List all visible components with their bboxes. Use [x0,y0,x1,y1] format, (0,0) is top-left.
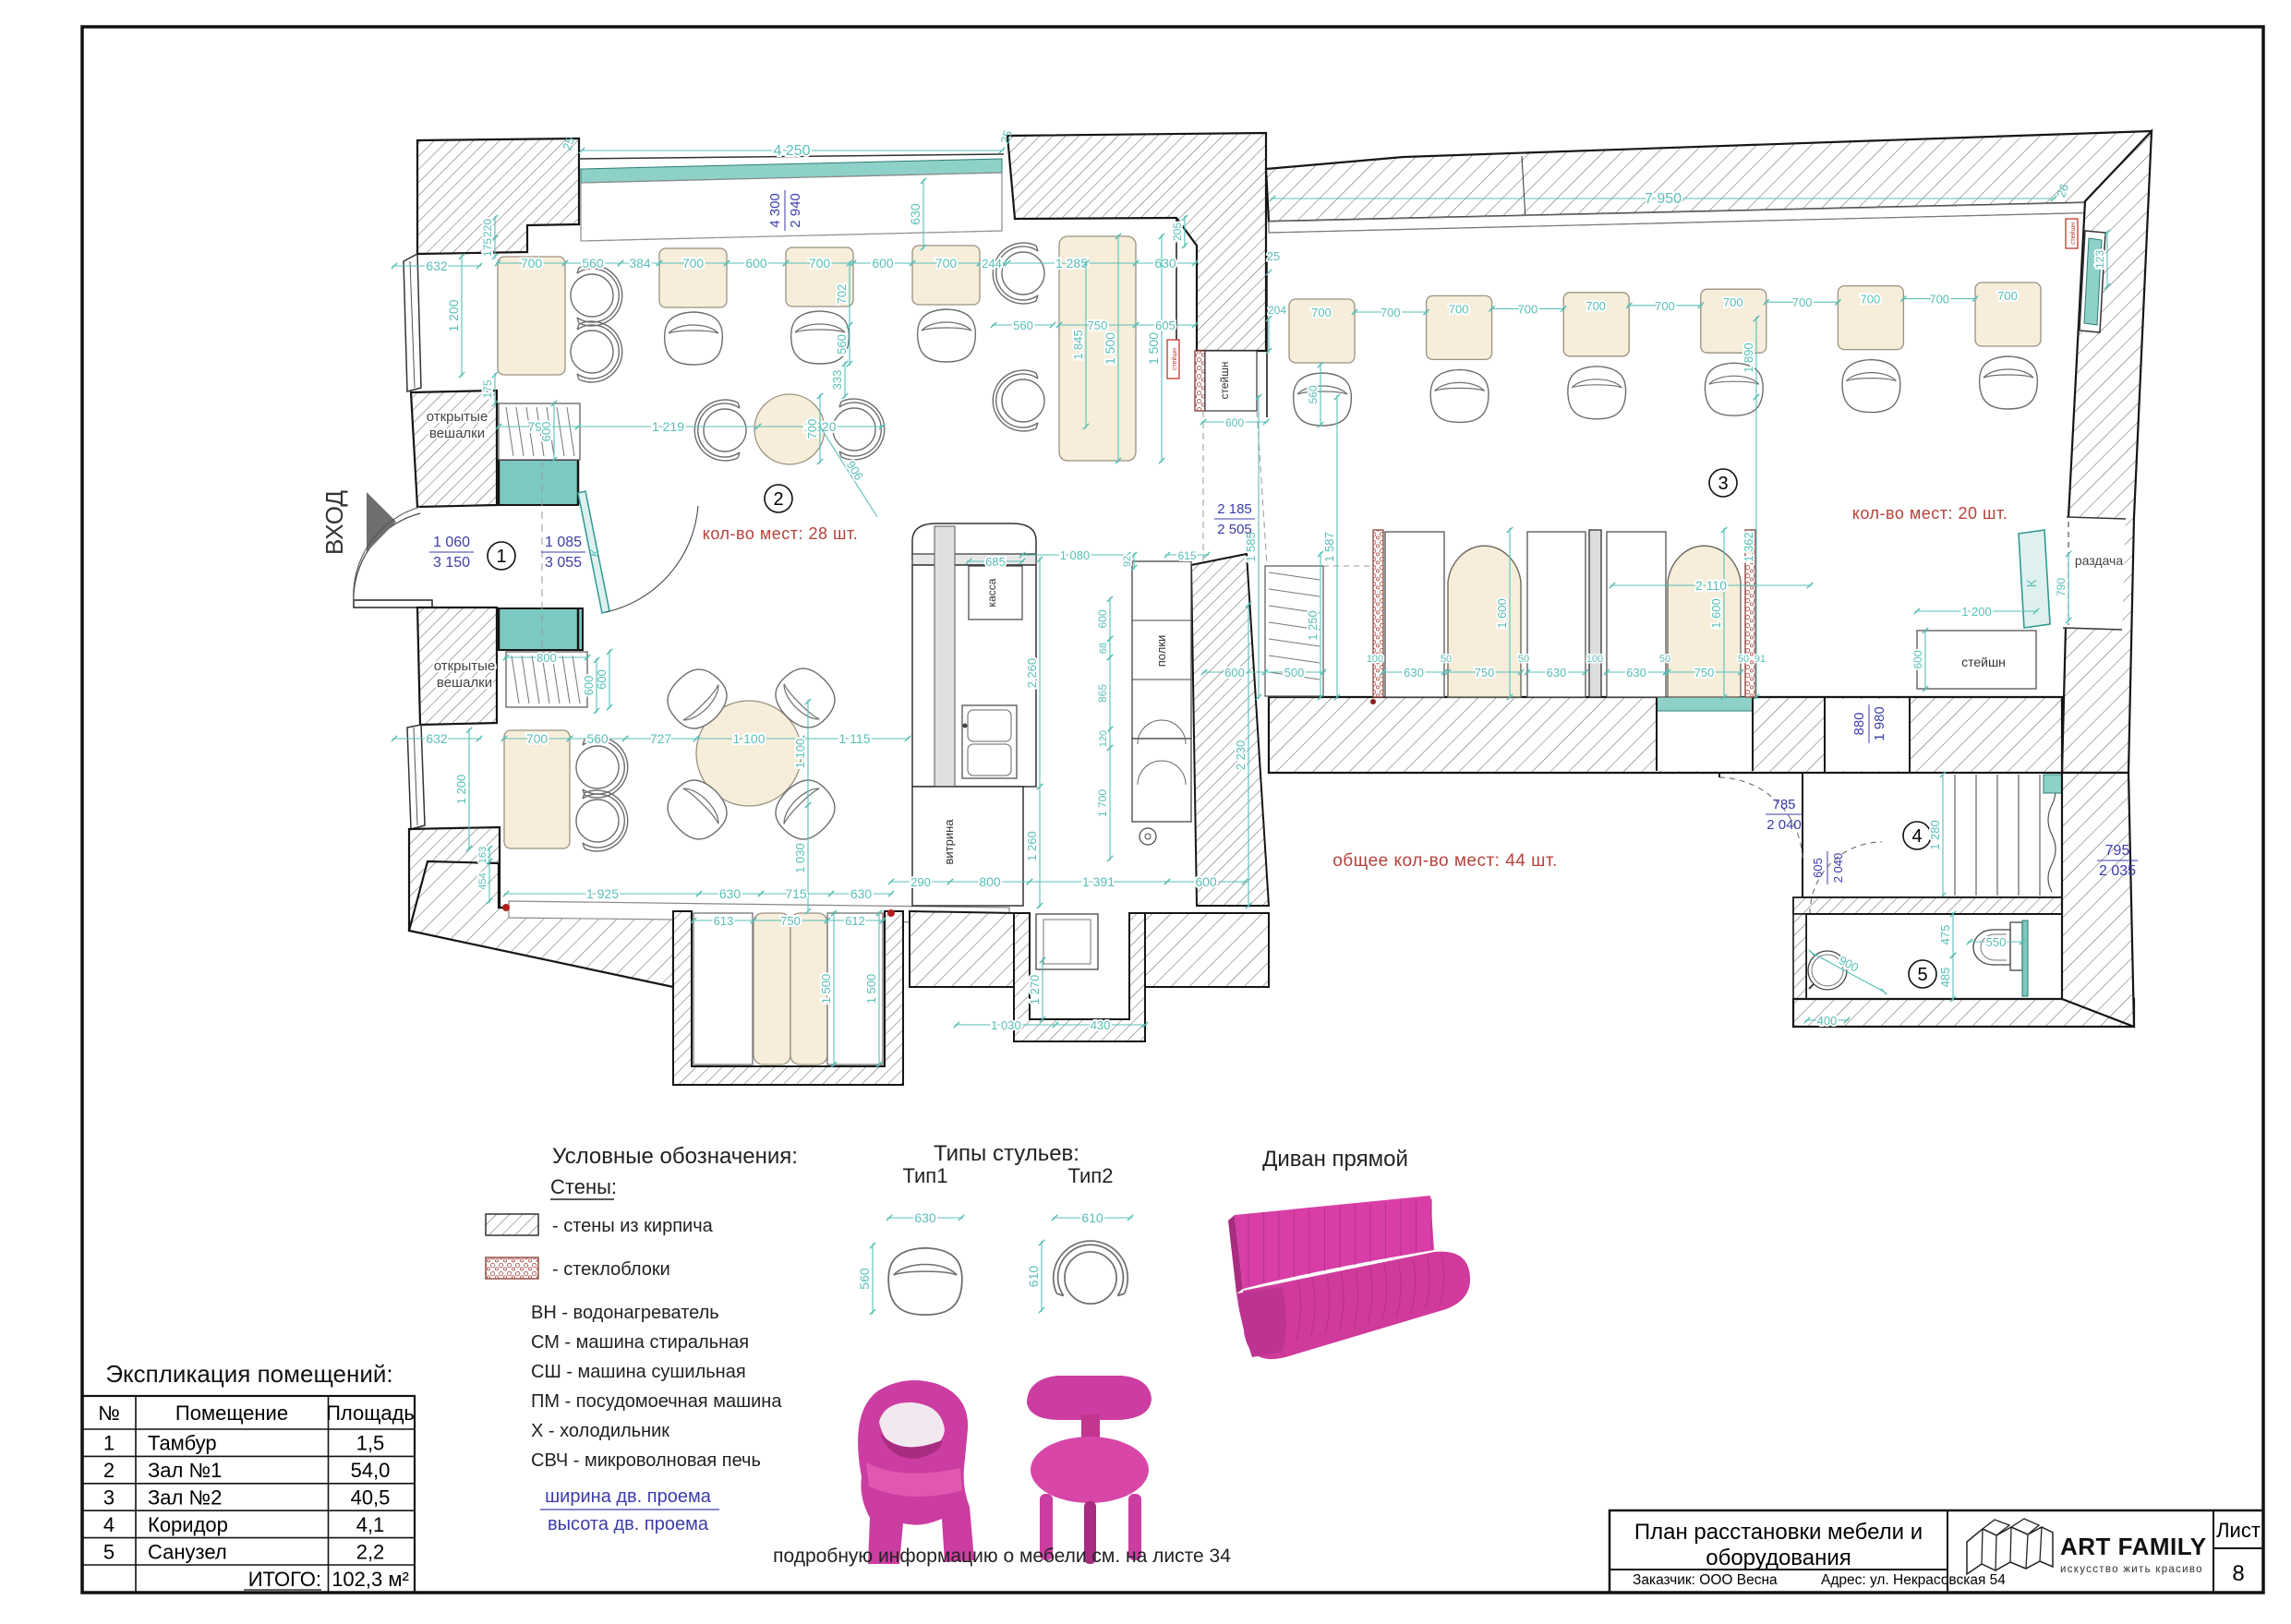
svg-text:204: 204 [1268,304,1286,317]
svg-text:560: 560 [1307,385,1320,403]
svg-text:500: 500 [1284,666,1305,680]
svg-text:Коридор: Коридор [148,1513,228,1536]
svg-text:750: 750 [1694,666,1715,680]
svg-text:Помещение: Помещение [175,1401,288,1425]
svg-text:632: 632 [426,259,448,273]
svg-text:оборудования: оборудования [1706,1546,1851,1570]
svg-text:700: 700 [1586,299,1606,313]
svg-text:1 700: 1 700 [1096,789,1109,817]
svg-text:700: 700 [1792,295,1813,309]
svg-text:2 035: 2 035 [2099,863,2136,879]
svg-text:5: 5 [103,1540,115,1563]
svg-text:1 362: 1 362 [1742,532,1755,562]
svg-text:600: 600 [582,676,596,696]
svg-text:1 845: 1 845 [1071,330,1085,360]
svg-text:630: 630 [850,886,873,901]
svg-text:102,3 м²: 102,3 м² [332,1568,409,1591]
svg-text:Типы стульев:: Типы стульев: [934,1141,1079,1166]
svg-text:50: 50 [1518,654,1529,665]
svg-text:615: 615 [1177,549,1196,562]
svg-text:790: 790 [2055,578,2068,596]
svg-text:54,0: 54,0 [351,1459,391,1482]
svg-text:3: 3 [1718,474,1728,494]
svg-text:1 980: 1 980 [1872,706,1887,741]
svg-text:стейшн: стейшн [1961,655,2006,669]
svg-text:СШ - машина сушильная: СШ - машина сушильная [531,1362,746,1382]
svg-text:стейшн: стейшн [1171,348,1178,370]
svg-text:700: 700 [682,256,705,271]
svg-text:600: 600 [1096,609,1109,628]
svg-text:1 030: 1 030 [991,1018,1021,1032]
svg-text:вешалки: вешалки [437,675,492,691]
svg-text:1 030: 1 030 [793,843,807,873]
svg-text:ИТОГО:: ИТОГО: [248,1568,321,1591]
svg-text:630: 630 [1547,666,1567,680]
svg-text:вешалки: вешалки [429,426,485,441]
svg-text:865: 865 [1096,684,1109,703]
svg-text:ПМ - посудомоечная машина: ПМ - посудомоечная машина [531,1391,782,1412]
svg-text:700: 700 [1655,299,1675,313]
svg-text:600: 600 [872,256,894,271]
svg-text:750: 750 [1475,666,1495,680]
svg-text:4: 4 [103,1513,115,1536]
svg-text:раздача: раздача [2075,553,2123,568]
svg-text:333: 333 [830,370,844,391]
svg-text:795: 795 [2105,843,2130,859]
svg-text:2,2: 2,2 [356,1540,385,1563]
svg-text:244: 244 [982,257,1002,271]
svg-text:3 150: 3 150 [433,555,470,571]
svg-text:1 100: 1 100 [793,739,807,769]
svg-text:2 040: 2 040 [1831,853,1845,884]
svg-text:Условные обозначения:: Условные обозначения: [552,1144,798,1169]
svg-text:ширина дв. проема: ширина дв. проема [545,1486,712,1507]
svg-text:727: 727 [650,731,672,746]
svg-text:Санузел: Санузел [148,1540,227,1563]
svg-text:612: 612 [845,914,865,928]
svg-text:454: 454 [477,872,488,889]
svg-text:1 200: 1 200 [446,299,461,331]
svg-text:400: 400 [1817,1014,1838,1028]
svg-text:- стеклоблоки: - стеклоблоки [552,1259,670,1280]
svg-text:785: 785 [1772,797,1795,812]
svg-text:700: 700 [1997,289,2018,303]
svg-text:50: 50 [1659,654,1670,665]
svg-text:2 185: 2 185 [1217,501,1252,517]
svg-text:Площадь: Площадь [326,1401,415,1425]
svg-text:1 600: 1 600 [1709,598,1723,629]
svg-text:4 250: 4 250 [773,143,810,159]
svg-text:560: 560 [835,334,849,355]
svg-text:630: 630 [719,886,742,901]
svg-text:600: 600 [1224,666,1245,680]
svg-text:290: 290 [910,875,931,889]
svg-text:700: 700 [1449,302,1469,316]
svg-text:91: 91 [1754,654,1766,665]
svg-text:1: 1 [103,1432,115,1455]
svg-text:1 200: 1 200 [1961,605,1992,619]
svg-text:700: 700 [1861,293,1881,307]
svg-text:630: 630 [908,203,922,225]
svg-text:25: 25 [1267,249,1280,263]
svg-text:СМ - машина стиральная: СМ - машина стиральная [531,1332,749,1353]
svg-text:Лист: Лист [2216,1519,2261,1542]
svg-text:560: 560 [1013,319,1033,332]
svg-text:План расстановки мебели и: План расстановки мебели и [1634,1520,1923,1545]
svg-text:1 219: 1 219 [652,419,684,434]
svg-text:2 110: 2 110 [1695,578,1727,593]
svg-text:800: 800 [537,651,557,665]
svg-text:высота дв. проема: высота дв. проема [548,1514,709,1534]
svg-text:2: 2 [773,489,783,510]
svg-text:630: 630 [1404,666,1424,680]
svg-text:Стены:: Стены: [550,1175,617,1198]
svg-text:1 500: 1 500 [1103,332,1117,365]
svg-text:485: 485 [1938,968,1952,988]
svg-text:1 391: 1 391 [1082,874,1115,889]
svg-text:2 940: 2 940 [788,193,803,228]
svg-text:Зал №2: Зал №2 [148,1486,222,1510]
svg-text:700: 700 [521,256,543,271]
svg-text:50: 50 [1738,654,1749,665]
svg-text:1 260: 1 260 [1025,831,1039,861]
svg-text:стейшн: стейшн [2069,223,2077,245]
svg-text:1: 1 [496,547,506,567]
svg-text:1 115: 1 115 [839,731,871,746]
svg-text:430: 430 [1091,1018,1111,1032]
svg-text:560: 560 [857,1268,872,1290]
svg-text:560: 560 [586,731,609,746]
svg-text:700: 700 [809,256,831,271]
svg-text:610: 610 [1081,1210,1103,1225]
svg-text:Тип1: Тип1 [903,1164,948,1187]
svg-text:1,5: 1,5 [356,1432,385,1455]
svg-text:100: 100 [1586,654,1603,665]
svg-text:Диван прямой: Диван прямой [1262,1147,1408,1172]
svg-text:искусство жить красиво: искусство жить красиво [2060,1564,2203,1575]
svg-text:общее кол-во мест: 44 шт.: общее кол-во мест: 44 шт. [1332,851,1558,871]
svg-text:открытые: открытые [434,658,496,674]
svg-text:3 055: 3 055 [545,555,582,571]
svg-text:Зал №1: Зал №1 [148,1459,222,1482]
svg-text:700: 700 [1311,306,1332,319]
svg-text:1 500: 1 500 [864,974,878,1004]
svg-text:1 890: 1 890 [1742,343,1755,373]
svg-text:92: 92 [1122,556,1133,567]
svg-text:715: 715 [785,886,807,901]
svg-text:613: 613 [714,914,734,928]
svg-text:702: 702 [835,284,849,305]
svg-text:Адрес: ул. Некрасовская 54: Адрес: ул. Некрасовская 54 [1821,1572,2006,1588]
svg-text:163: 163 [477,847,488,863]
svg-text:1 600: 1 600 [1495,598,1509,629]
svg-text:175: 175 [481,238,494,257]
svg-text:кол-во мест: 28 шт.: кол-во мест: 28 шт. [703,524,858,543]
svg-text:50: 50 [1441,654,1452,665]
svg-text:600: 600 [745,256,767,271]
svg-text:стейшн: стейшн [1218,362,1231,400]
svg-text:8: 8 [2232,1561,2244,1586]
svg-text:касса: касса [985,578,998,607]
svg-text:2 260: 2 260 [1025,658,1039,689]
svg-text:витрина: витрина [942,819,956,865]
svg-text:1 587: 1 587 [1322,532,1336,562]
svg-text:4: 4 [1911,826,1922,847]
svg-text:700: 700 [805,419,819,439]
svg-text:К: К [2024,579,2040,587]
svg-text:550: 550 [1986,935,2007,949]
svg-text:№: № [98,1401,120,1425]
svg-text:610: 610 [1026,1266,1041,1288]
svg-text:СВЧ - микроволновая печь: СВЧ - микроволновая печь [531,1450,761,1471]
svg-text:630: 630 [1626,666,1646,680]
svg-text:5: 5 [1917,965,1927,985]
svg-text:600: 600 [1225,416,1244,429]
svg-text:1 100: 1 100 [732,731,765,746]
svg-text:120: 120 [1098,730,1109,747]
svg-text:1 060: 1 060 [433,535,470,550]
svg-text:4 300: 4 300 [767,193,783,228]
svg-text:2 040: 2 040 [1766,817,1802,833]
svg-text:Тип2: Тип2 [1068,1164,1114,1187]
svg-text:1 285: 1 285 [1055,256,1088,271]
svg-text:630: 630 [1154,256,1176,271]
svg-text:750: 750 [780,914,801,928]
svg-text:1 200: 1 200 [454,775,468,805]
svg-text:605: 605 [1155,319,1176,332]
svg-text:40,5: 40,5 [351,1486,391,1510]
svg-text:68: 68 [1098,643,1109,654]
svg-text:1 925: 1 925 [586,886,619,901]
svg-text:2: 2 [103,1459,115,1482]
svg-text:1 500: 1 500 [1146,332,1161,365]
svg-text:полки: полки [1154,635,1168,668]
svg-text:700: 700 [1518,302,1538,316]
svg-text:1 280: 1 280 [1928,820,1942,850]
svg-text:3: 3 [103,1486,115,1510]
svg-text:подробную информацию о мебели: подробную информацию о мебели см. на лис… [773,1546,1231,1567]
svg-text:4,1: 4,1 [356,1513,385,1536]
svg-text:700: 700 [526,731,549,746]
svg-text:475: 475 [1938,925,1952,945]
svg-text:1 080: 1 080 [1060,548,1091,562]
svg-text:ART FAMILY: ART FAMILY [2060,1533,2207,1560]
svg-text:Заказчик: ООО Весна: Заказчик: ООО Весна [1633,1572,1778,1588]
svg-text:685: 685 [985,555,1006,569]
svg-text:384: 384 [629,256,651,271]
svg-text:7 950: 7 950 [1645,191,1682,207]
svg-text:1 500: 1 500 [819,974,833,1004]
svg-text:кол-во мест: 20 шт.: кол-во мест: 20 шт. [1852,504,2008,523]
svg-text:открытые: открытые [427,409,488,425]
svg-text:Тамбур: Тамбур [148,1432,217,1455]
svg-text:175: 175 [481,379,494,398]
svg-text:632: 632 [426,731,448,746]
svg-text:560: 560 [582,256,604,271]
svg-text:700: 700 [1381,306,1401,319]
svg-text:100: 100 [1367,654,1383,665]
svg-text:605: 605 [1811,858,1825,878]
svg-text:1 250: 1 250 [1306,610,1320,641]
svg-text:ВН - водонагреватель: ВН - водонагреватель [531,1303,719,1323]
svg-text:600: 600 [1911,650,1924,668]
svg-text:- стены из кирпича: - стены из кирпича [552,1216,714,1236]
svg-text:ВХОД: ВХОД [320,490,348,555]
svg-text:750: 750 [1088,319,1108,332]
svg-text:1 085: 1 085 [545,535,582,550]
svg-text:700: 700 [1723,295,1743,309]
svg-text:1 270: 1 270 [1028,975,1042,1005]
svg-text:220: 220 [481,219,494,237]
svg-text:2 505: 2 505 [1217,522,1252,537]
svg-text:700: 700 [1929,293,1949,307]
svg-text:800: 800 [979,874,1001,889]
svg-text:Х - холодильник: Х - холодильник [531,1421,669,1441]
svg-text:2 230: 2 230 [1234,740,1248,771]
svg-text:Экспликация помещений:: Экспликация помещений: [105,1360,392,1388]
svg-text:700: 700 [935,256,958,271]
svg-text:123: 123 [2093,250,2106,269]
svg-text:600: 600 [1195,874,1217,889]
svg-text:600: 600 [539,422,553,442]
svg-text:205: 205 [1171,223,1184,241]
svg-text:630: 630 [914,1210,936,1225]
svg-text:880: 880 [1851,712,1867,735]
